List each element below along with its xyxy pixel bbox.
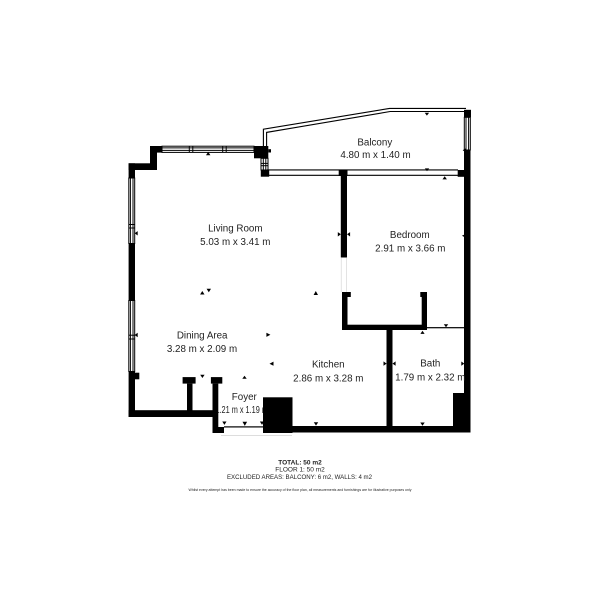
svg-text:FLOOR 1: 50 m2: FLOOR 1: 50 m2 xyxy=(275,466,325,473)
svg-text:Bath: Bath xyxy=(420,359,440,370)
svg-text:4.80 m x 1.40 m: 4.80 m x 1.40 m xyxy=(340,150,410,161)
svg-text:3.28 m x 2.09 m: 3.28 m x 2.09 m xyxy=(167,344,237,355)
svg-text:Kitchen: Kitchen xyxy=(312,360,345,371)
svg-text:Dining Area: Dining Area xyxy=(177,330,228,341)
svg-text:1.21 m x 1.19 m: 1.21 m x 1.19 m xyxy=(215,405,268,416)
svg-text:2.86 m x 3.28 m: 2.86 m x 3.28 m xyxy=(293,374,363,385)
svg-text:2.91 m x 3.66 m: 2.91 m x 3.66 m xyxy=(375,244,445,255)
svg-text:Whilst every attempt has been: Whilst every attempt has been made to en… xyxy=(189,488,412,492)
svg-text:1.79 m x 2.32 m: 1.79 m x 2.32 m xyxy=(395,373,465,384)
svg-text:Balcony: Balcony xyxy=(357,137,392,148)
svg-text:Living Room: Living Room xyxy=(208,223,262,234)
svg-text:Bedroom: Bedroom xyxy=(390,230,430,241)
svg-text:5.03 m x 3.41 m: 5.03 m x 3.41 m xyxy=(200,237,270,248)
svg-text:Foyer: Foyer xyxy=(232,392,258,403)
svg-text:EXCLUDED AREAS: BALCONY: 6 m2,: EXCLUDED AREAS: BALCONY: 6 m2, WALLS: 4 … xyxy=(227,474,373,481)
